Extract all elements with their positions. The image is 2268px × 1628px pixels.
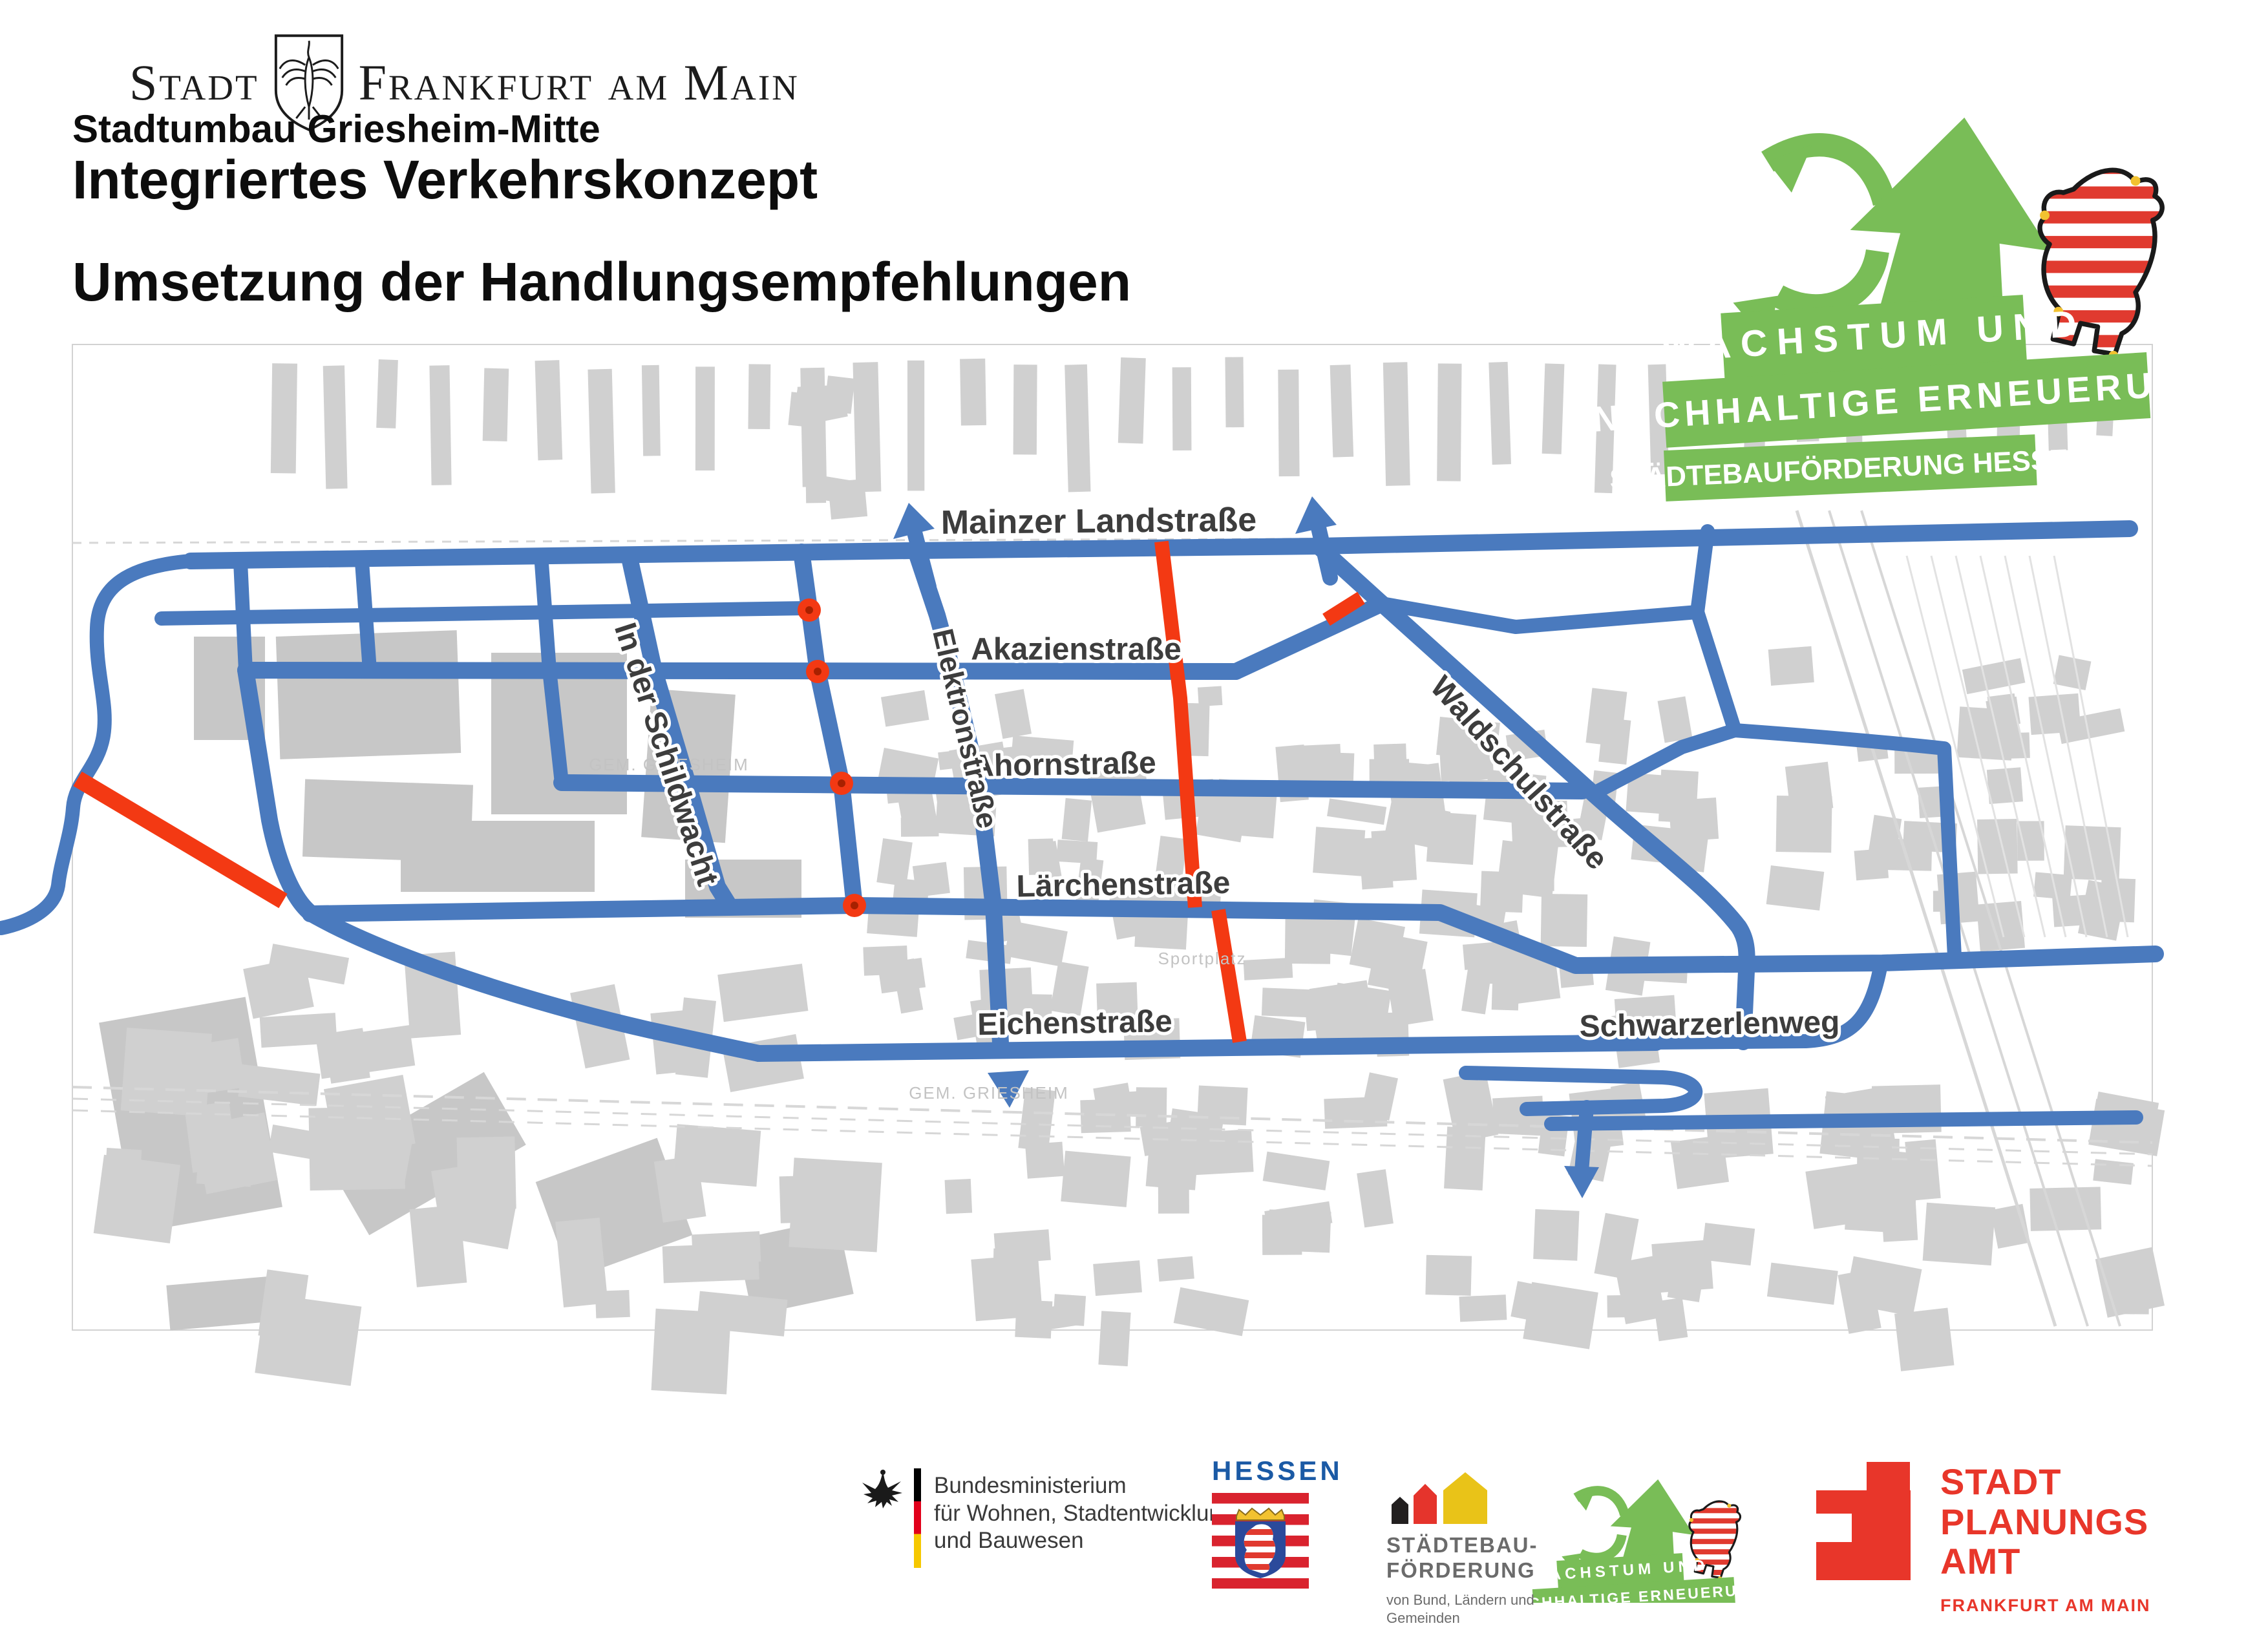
base-map-label: Sportplatz	[1158, 949, 1246, 968]
building	[103, 1148, 142, 1215]
building	[1330, 365, 1354, 458]
building	[1437, 363, 1461, 481]
building	[2053, 655, 2092, 690]
building	[588, 369, 615, 494]
building	[1350, 918, 1405, 973]
building	[1062, 798, 1092, 841]
building	[1025, 1142, 1065, 1179]
hessen-logo: HESSEN	[1212, 1455, 1343, 1589]
sbf-line1: STÄDTEBAU-	[1386, 1533, 1606, 1558]
building	[1285, 916, 1331, 964]
spa-line3: AMT	[1940, 1541, 2150, 1581]
city-logo-text-stadt: Stadt	[129, 58, 259, 108]
building	[1065, 365, 1090, 492]
building	[555, 1218, 608, 1307]
building	[853, 362, 881, 492]
sbf-line3: von Bund, Ländern und	[1386, 1591, 1606, 1610]
building	[1776, 796, 1832, 852]
building	[1598, 717, 1631, 765]
building	[535, 360, 563, 460]
road-akazienstrasse	[246, 670, 1236, 671]
tricolor-bar	[914, 1468, 921, 1568]
building	[1542, 363, 1565, 454]
page-subtitle: Umsetzung der Handlungsempfehlungen	[72, 255, 1131, 309]
page-headings: Stadtumbau Griesheim-Mitte Integriertes …	[72, 110, 1131, 309]
building	[1013, 365, 1037, 454]
staedtebaufoerderung-logo: STÄDTEBAU- FÖRDERUNG von Bund, Ländern u…	[1386, 1471, 1606, 1628]
building	[323, 365, 348, 489]
building	[1425, 1255, 1472, 1296]
bund-line1: Bundesministerium	[934, 1472, 1234, 1500]
road-eichenstrasse	[759, 1042, 1656, 1053]
building	[376, 359, 398, 428]
building	[1766, 865, 1825, 911]
building	[779, 1175, 839, 1223]
measure-point-core	[814, 668, 821, 675]
bundesministerium-logo: Bundesministerium für Wohnen, Stadtentwi…	[860, 1468, 1234, 1568]
measure-point-core	[838, 779, 845, 787]
hessen-wordmark: HESSEN	[1212, 1455, 1343, 1486]
bund-line2: für Wohnen, Stadtentwicklung	[934, 1500, 1234, 1528]
building	[1313, 827, 1365, 876]
building	[1533, 1209, 1579, 1261]
building	[1880, 1187, 1918, 1242]
building	[886, 913, 911, 935]
building	[1309, 980, 1375, 1044]
sbf-line4: Gemeinden	[1386, 1609, 1606, 1628]
building	[1118, 357, 1146, 444]
street-label: Ahornstraße	[971, 746, 1156, 783]
measure-point-core	[851, 902, 858, 909]
building	[642, 365, 661, 456]
street-label: Akazienstraße	[971, 633, 1181, 667]
building	[2030, 1187, 2101, 1231]
building	[1653, 1298, 1688, 1341]
sbf-line2: FÖRDERUNG	[1386, 1558, 1606, 1583]
building	[271, 363, 297, 473]
building	[806, 480, 826, 503]
building	[457, 1136, 516, 1210]
hessen-flag	[1212, 1493, 1309, 1589]
building	[662, 1243, 759, 1283]
building	[1172, 367, 1192, 450]
federal-eagle-icon	[860, 1468, 905, 1510]
building	[1359, 837, 1394, 890]
building	[1278, 370, 1299, 476]
building	[828, 479, 867, 520]
spa-line1: STADT	[1940, 1462, 2150, 1502]
building	[945, 1179, 973, 1214]
building	[1523, 1282, 1598, 1349]
stadtplanungsamt-logo: STADT PLANUNGS AMT FRANKFURT AM MAIN	[1815, 1462, 2150, 1616]
building	[1158, 1256, 1194, 1282]
road-ahornstrasse	[562, 783, 1582, 791]
building	[1098, 1311, 1130, 1366]
three-houses-icon	[1386, 1471, 1503, 1524]
building	[695, 366, 715, 470]
building	[1225, 357, 1244, 427]
building	[401, 821, 595, 892]
building	[1093, 1260, 1142, 1296]
stadtplanungsamt-mark-icon	[1815, 1462, 1912, 1581]
building	[429, 365, 451, 485]
building	[184, 1101, 237, 1172]
building	[1459, 1295, 1507, 1322]
building	[1923, 1203, 1995, 1265]
street-label: Eichenstraße	[977, 1004, 1172, 1042]
project-kicker: Stadtumbau Griesheim-Mitte	[72, 110, 1131, 149]
building	[1262, 1214, 1302, 1254]
building	[1894, 1307, 1954, 1371]
building	[1198, 686, 1222, 707]
building	[1262, 988, 1315, 1017]
building	[907, 361, 924, 491]
page-title: Integriertes Verkehrskonzept	[72, 153, 1131, 207]
city-logo-text-frankfurt: Frankfurt am Main	[359, 58, 800, 108]
bund-line3: und Bauwesen	[934, 1527, 1234, 1555]
building	[323, 1028, 370, 1083]
street-label: Schwarzerlenweg	[1579, 1005, 1840, 1044]
building	[1701, 1223, 1755, 1265]
spa-line4: FRANKFURT AM MAIN	[1940, 1596, 2150, 1616]
building	[1768, 646, 1814, 686]
base-map-label: GEM. GRIESHEIM	[909, 1083, 1069, 1103]
building	[1015, 1300, 1052, 1338]
building	[960, 359, 986, 426]
building	[1607, 1295, 1655, 1317]
building	[1383, 362, 1410, 486]
building	[1244, 958, 1293, 980]
measure-point-core	[805, 606, 813, 614]
building	[1489, 362, 1511, 465]
building	[1987, 767, 2023, 804]
street-label: Lärchenstraße	[1016, 866, 1231, 904]
building	[175, 1038, 246, 1097]
building	[876, 838, 913, 887]
building	[1061, 1150, 1130, 1207]
hessen-coat-of-arms-icon	[1230, 1502, 1291, 1580]
building	[993, 1249, 1028, 1283]
spa-line2: PLANUNGS	[1940, 1502, 2150, 1542]
street-label: Mainzer Landstraße	[941, 502, 1257, 542]
building	[255, 1293, 361, 1386]
building	[863, 946, 907, 976]
building	[1541, 894, 1588, 947]
building	[654, 1156, 706, 1223]
building	[1480, 871, 1523, 913]
building	[2093, 1159, 2134, 1185]
building	[483, 368, 509, 441]
building	[748, 364, 770, 429]
building	[1522, 844, 1554, 891]
